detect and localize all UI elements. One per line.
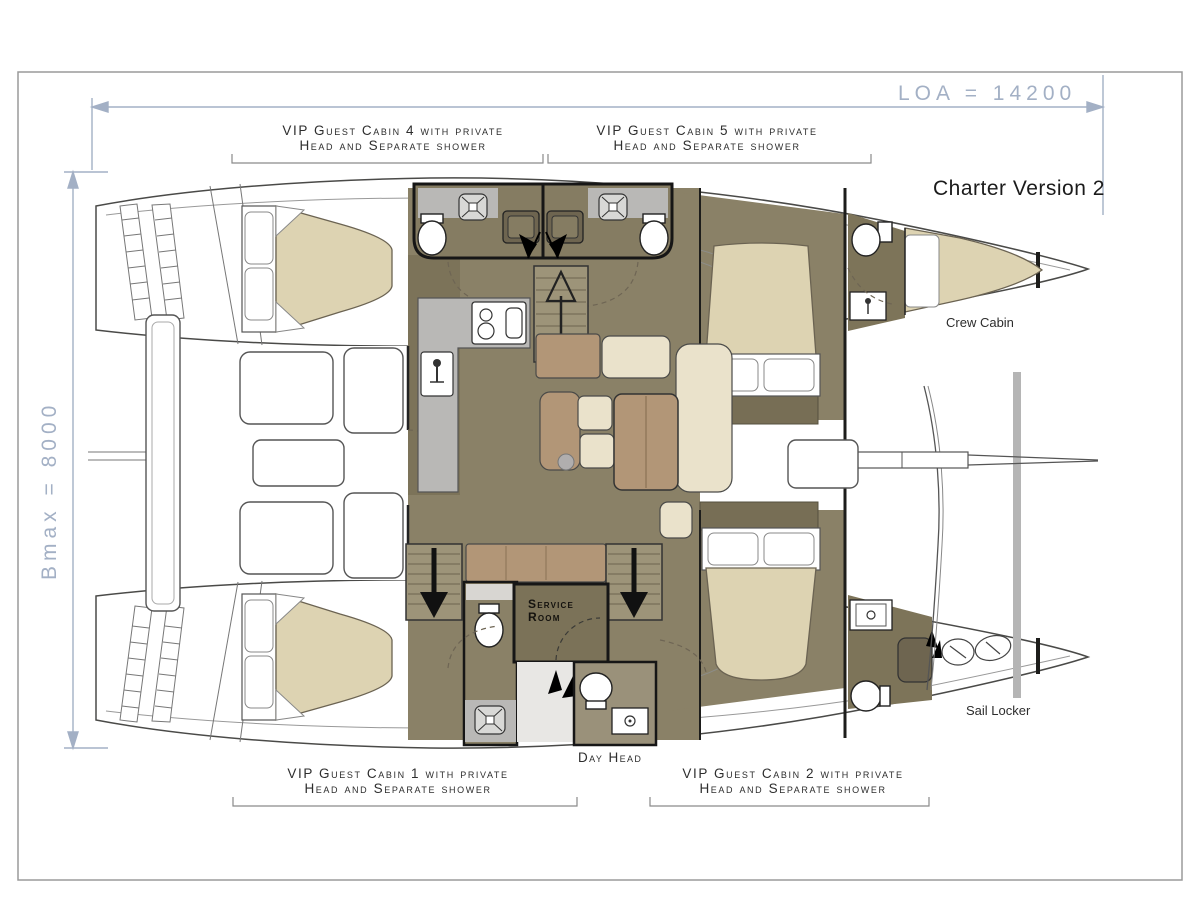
cabin1-label: VIP Guest Cabin 1 with private Head and … xyxy=(198,766,598,796)
cabin4-label-line2: Head and Separate shower xyxy=(299,138,486,153)
cabin1-label-line2: Head and Separate shower xyxy=(304,781,491,796)
cockpit-table xyxy=(253,440,344,486)
shower-cabin5 xyxy=(599,194,627,220)
loa-dimension-label: LOA = 14200 xyxy=(898,82,1076,106)
cabin5-label-line2: Head and Separate shower xyxy=(613,138,800,153)
sail-locker-label: Sail Locker xyxy=(966,703,1030,718)
charter-version-label: Charter Version 2 xyxy=(933,177,1105,201)
day-head-lobby xyxy=(517,662,574,742)
forestay-bar xyxy=(1013,372,1021,698)
service-room-label: Service Room xyxy=(528,598,574,624)
floor-plan-page: LOA = 14200 Bmax = 8000 Charter Version … xyxy=(0,0,1200,900)
sink-day-head xyxy=(612,708,648,734)
sink-cabin2 xyxy=(850,600,892,630)
cabin2-label-line1: VIP Guest Cabin 2 with private xyxy=(682,766,903,781)
toilet-cabin4 xyxy=(418,214,446,255)
cockpit-seat xyxy=(240,502,333,574)
sofa-side xyxy=(676,344,732,492)
cabin1-label-line1: VIP Guest Cabin 1 with private xyxy=(287,766,508,781)
toilet-cabin2 xyxy=(851,681,890,711)
service-room-label-line1: Service xyxy=(528,597,574,611)
bowsprit xyxy=(848,452,1098,468)
stove xyxy=(472,302,526,344)
galley-sink xyxy=(421,352,453,396)
toilet-cabin1 xyxy=(475,604,503,647)
service-room-label-line2: Room xyxy=(528,610,561,624)
cabin4-label-line1: VIP Guest Cabin 4 with private xyxy=(282,123,503,138)
bed-cabin2 xyxy=(700,502,820,680)
deck-hatch xyxy=(788,440,858,488)
toilet-cabin5 xyxy=(640,214,668,255)
shower-cabin4 xyxy=(459,194,487,220)
cushion xyxy=(578,396,612,430)
cabin2-label: VIP Guest Cabin 2 with private Head and … xyxy=(593,766,993,796)
sink-crew xyxy=(850,292,886,320)
stool xyxy=(660,502,692,538)
cabin5-label: VIP Guest Cabin 5 with private Head and … xyxy=(507,123,907,153)
bmax-dimension-label: Bmax = 8000 xyxy=(38,401,62,580)
stairs-down-starboard xyxy=(606,544,662,620)
cabin2-label-line2: Head and Separate shower xyxy=(699,781,886,796)
cockpit-seat xyxy=(344,348,403,433)
sideboard xyxy=(536,334,600,378)
saloon-table xyxy=(614,394,678,490)
shower-cabin1 xyxy=(475,706,505,734)
lamp xyxy=(558,454,574,470)
cockpit-aft-bench xyxy=(146,315,180,611)
aft-cabinets xyxy=(466,544,606,582)
cockpit-seat xyxy=(344,493,403,578)
cabin5-label-line1: VIP Guest Cabin 5 with private xyxy=(596,123,817,138)
day-head-label: Day Head xyxy=(578,750,642,765)
cockpit-seat xyxy=(240,352,333,424)
cushion xyxy=(580,434,614,468)
stairs-down-port xyxy=(406,544,462,620)
sofa-forward xyxy=(602,336,670,378)
crew-cabin-label: Crew Cabin xyxy=(946,315,1014,330)
